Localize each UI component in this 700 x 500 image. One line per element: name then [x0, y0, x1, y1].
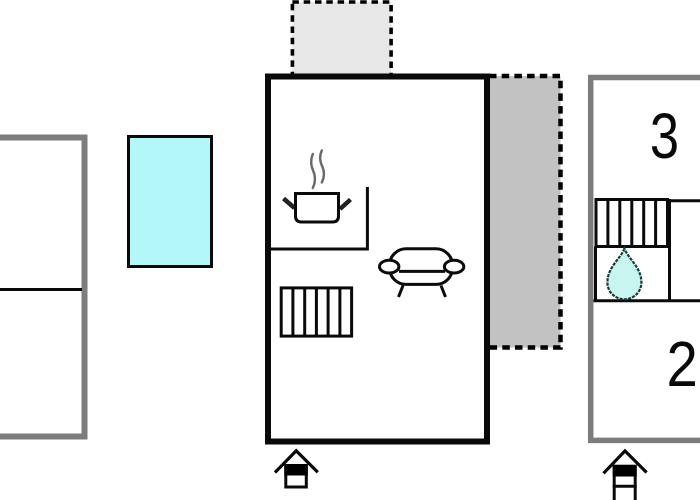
svg-text:2: 2: [667, 328, 698, 400]
svg-text:3: 3: [650, 101, 679, 172]
